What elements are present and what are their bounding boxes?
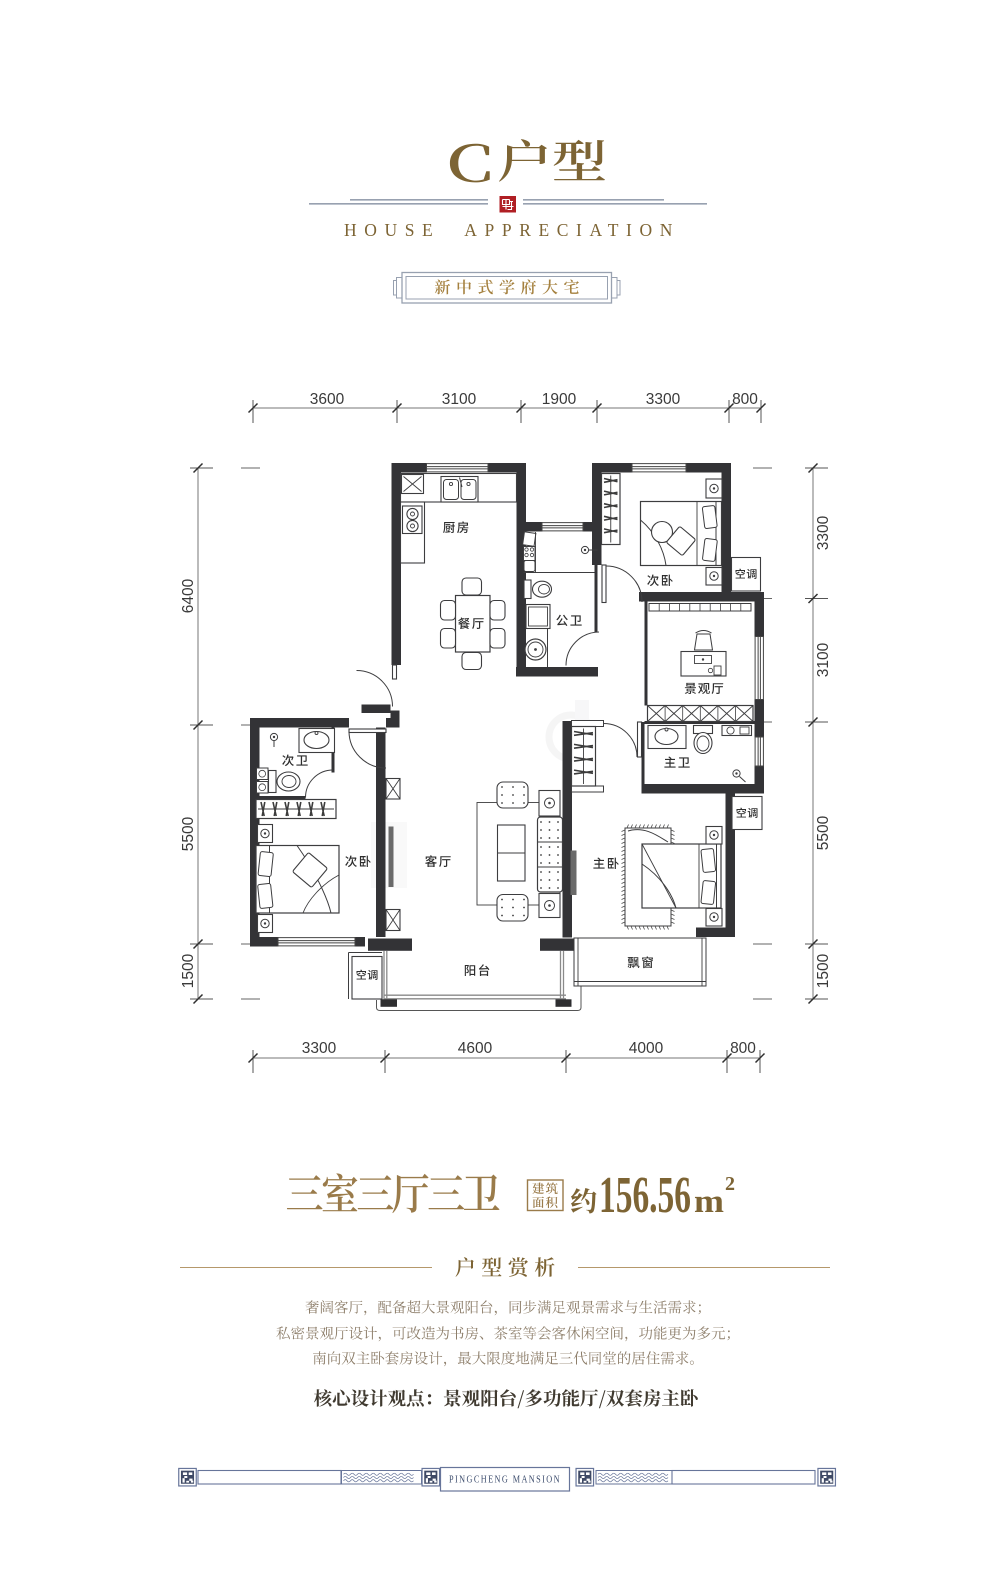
svg-text:800: 800 — [730, 1040, 756, 1057]
svg-text:3300: 3300 — [815, 515, 832, 550]
svg-text:6400: 6400 — [180, 578, 197, 613]
svg-text:3300: 3300 — [646, 391, 681, 408]
svg-text:3300: 3300 — [302, 1040, 337, 1057]
svg-text:3600: 3600 — [310, 391, 345, 408]
svg-text:3100: 3100 — [815, 642, 832, 677]
svg-text:1500: 1500 — [815, 953, 832, 988]
svg-text:4000: 4000 — [629, 1040, 664, 1057]
svg-text:m: m — [694, 1184, 724, 1220]
svg-text:4600: 4600 — [458, 1040, 493, 1057]
svg-text:1500: 1500 — [180, 953, 197, 988]
svg-text:1900: 1900 — [542, 391, 577, 408]
svg-text:HOUSE APPRECIATION: HOUSE APPRECIATION — [344, 220, 680, 240]
svg-text:2: 2 — [725, 1173, 735, 1195]
svg-text:156.56: 156.56 — [599, 1167, 691, 1224]
svg-text:3100: 3100 — [442, 391, 477, 408]
svg-text:800: 800 — [732, 391, 758, 408]
svg-text:5500: 5500 — [180, 816, 197, 851]
svg-text:5500: 5500 — [815, 815, 832, 850]
svg-text:PINGCHENG MANSION: PINGCHENG MANSION — [449, 1475, 561, 1486]
